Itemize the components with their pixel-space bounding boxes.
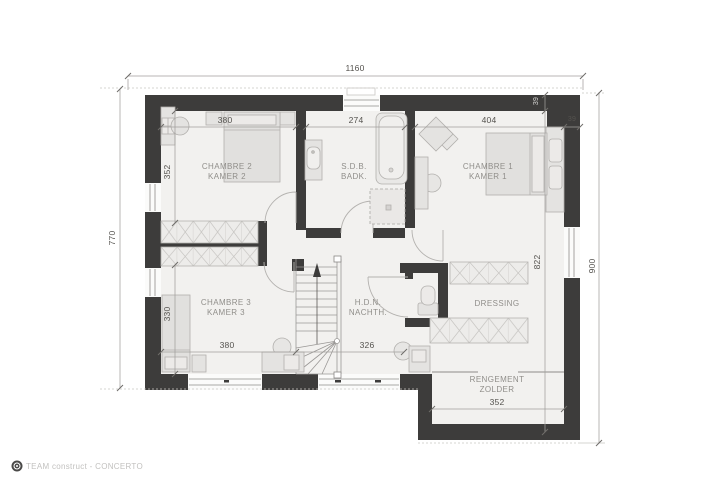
room-label-hall-nl: NACHTH. xyxy=(349,308,387,318)
room-label-dressing: DRESSING xyxy=(475,299,520,309)
room-label-sdb-nl: BADK. xyxy=(341,172,367,182)
window-left-1-icon xyxy=(145,183,161,212)
sink-icon xyxy=(305,140,322,180)
room-label-chambre2-fr: CHAMBRE 2 xyxy=(202,162,252,172)
room-label-hall-fr: H.D.N. xyxy=(349,298,387,308)
wardrobe-chambre3-icon xyxy=(161,247,258,266)
dim-label-hall-width: 326 xyxy=(360,340,375,350)
dim-label-overall-width: 1160 xyxy=(345,63,364,73)
toilet-icon xyxy=(418,286,438,315)
wardrobe-dressing-bottom-icon xyxy=(430,318,528,343)
dim-label-zolder-width: 352 xyxy=(490,397,505,407)
window-bottom-2-icon xyxy=(318,374,400,390)
dim-label-chambre3-depth: 330 xyxy=(162,307,172,322)
room-label-chambre1-nl: KAMER 1 xyxy=(463,172,513,182)
room-label-chambre1-fr: CHAMBRE 1 xyxy=(463,162,513,172)
room-label-sdb: S.D.B. BADK. xyxy=(341,162,367,182)
room-label-zolder-nl: ZOLDER xyxy=(470,385,525,395)
room-label-chambre1: CHAMBRE 1 KAMER 1 xyxy=(463,162,513,182)
dim-label-chambre1-width: 404 xyxy=(482,115,497,125)
room-label-chambre3-nl: KAMER 3 xyxy=(201,308,251,318)
window-right-icon xyxy=(564,227,580,278)
window-left-2-icon xyxy=(145,268,161,297)
dim-label-chambre3-width: 380 xyxy=(220,340,235,350)
dim-label-wall-right: 39 xyxy=(568,115,576,125)
window-top-icon xyxy=(343,95,380,111)
room-label-chambre2: CHAMBRE 2 KAMER 2 xyxy=(202,162,252,182)
dim-label-chambre2-width: 380 xyxy=(218,115,233,125)
dim-label-wall-top: 39 xyxy=(532,97,542,105)
dim-label-chambre2-depth: 352 xyxy=(162,165,172,180)
dim-label-right-height: 900 xyxy=(587,259,597,274)
room-label-chambre3: CHAMBRE 3 KAMER 3 xyxy=(201,298,251,318)
shower-icon xyxy=(370,189,405,224)
room-label-zolder: RENGEMENT ZOLDER xyxy=(470,375,525,395)
footer-credit: TEAM construct - CONCERTO xyxy=(26,462,143,472)
team-construct-logo-icon xyxy=(12,461,23,472)
floor-plan-page: CHAMBRE 2 KAMER 2 S.D.B. BADK. CHAMBRE 1… xyxy=(0,0,720,480)
room-label-hall: H.D.N. NACHTH. xyxy=(349,298,387,318)
bathtub-icon xyxy=(376,113,407,184)
wardrobe-dressing-top-icon xyxy=(450,262,528,284)
room-label-chambre2-nl: KAMER 2 xyxy=(202,172,252,182)
wardrobe-chambre2-icon xyxy=(161,221,258,243)
dim-label-right-interior: 822 xyxy=(532,255,542,270)
dim-label-sdb-width: 274 xyxy=(349,115,364,125)
room-label-chambre3-fr: CHAMBRE 3 xyxy=(201,298,251,308)
room-label-sdb-fr: S.D.B. xyxy=(341,162,367,172)
dim-label-left-height: 770 xyxy=(107,231,117,246)
room-label-zolder-fr: RENGEMENT xyxy=(470,375,525,385)
